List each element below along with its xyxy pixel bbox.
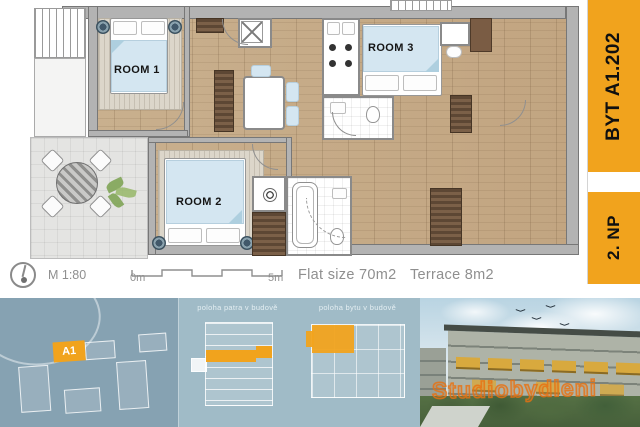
site-building-a1: A1	[53, 340, 86, 362]
nightstand	[96, 20, 110, 34]
closet-shelves	[252, 212, 286, 256]
desk-chair	[446, 46, 462, 58]
toilet-icon	[366, 106, 380, 123]
building-roof	[444, 325, 640, 338]
terrace-table	[56, 162, 98, 204]
site-building	[138, 333, 167, 353]
kitchen-sink	[327, 22, 340, 35]
stove-burner	[329, 44, 336, 51]
scale-bar	[128, 260, 288, 282]
stove-burner	[345, 44, 352, 51]
section-panel: poloha patra v budově	[178, 298, 296, 427]
balcony	[616, 363, 640, 376]
pillow	[403, 75, 437, 91]
unit-id-label: BYT A1.202	[603, 32, 625, 141]
flat-highlight	[312, 325, 354, 353]
wall-room1-bottom	[88, 130, 188, 137]
site-building	[116, 360, 149, 410]
building-photo: Studiobydleni	[420, 298, 640, 427]
wall-room1-right	[184, 6, 190, 137]
wall-room2-top	[148, 137, 292, 143]
balcony-top-left	[34, 8, 86, 58]
site-building	[64, 387, 102, 413]
blanket-fold	[425, 58, 439, 72]
section-floor-highlight	[256, 346, 272, 358]
wardrobe	[430, 188, 462, 246]
scale-label: M 1:80	[48, 268, 86, 282]
dining-chair	[286, 106, 299, 126]
stove-burner	[329, 60, 336, 67]
site-building-a1-label: A1	[62, 345, 77, 358]
floor-tag: 2. NP	[588, 192, 640, 284]
bird-icon	[532, 316, 541, 320]
footpath	[420, 406, 490, 427]
pillow	[365, 75, 399, 91]
floor-position-panel: poloha bytu v budově	[295, 298, 420, 427]
hall-wardrobe	[214, 70, 234, 132]
pillow	[206, 228, 240, 243]
room3-label: ROOM 3	[368, 42, 414, 54]
site-building	[85, 340, 116, 360]
pillow	[113, 21, 137, 35]
dining-chair	[251, 65, 271, 77]
unit-id-tag: BYT A1.202	[588, 0, 640, 172]
balcony	[488, 358, 512, 371]
balcony	[584, 361, 608, 374]
location-strip: A1 poloha patra v budově poloha bytu v b…	[0, 298, 640, 427]
wall-right	[566, 6, 579, 254]
terrace-size-text: Terrace 8m2	[410, 267, 494, 283]
unit-sidebar: BYT A1.202 2. NP	[587, 0, 640, 284]
room2-label: ROOM 2	[176, 196, 222, 208]
floor-label: 2. NP	[604, 215, 624, 260]
desk	[440, 22, 470, 46]
bird-icon	[560, 322, 569, 326]
balcony-top-center	[390, 0, 452, 11]
kitchen-sink	[342, 22, 355, 35]
plan-caption: poloha bytu v budově	[295, 303, 420, 312]
blanket-fold	[228, 210, 242, 224]
blanket-fold	[111, 40, 125, 54]
balcony	[456, 357, 480, 370]
bird-icon	[516, 308, 525, 312]
room1-label: ROOM 1	[114, 64, 160, 76]
balcony	[520, 359, 544, 372]
scale-end-label: 5m	[268, 272, 283, 284]
balcony-left-walk	[34, 58, 86, 137]
floor-plan: ROOM 1 ROOM 3	[0, 0, 587, 295]
scale-start-label: 0m	[130, 272, 145, 284]
dining-chair	[286, 82, 299, 102]
flat-highlight	[306, 331, 314, 347]
section-floor-highlight	[206, 350, 256, 362]
site-plan-panel: A1	[0, 298, 178, 427]
pillow	[168, 228, 202, 243]
flat-size-text: Flat size 70m2	[298, 267, 397, 283]
section-drawing	[205, 322, 273, 406]
nightstand	[152, 236, 166, 250]
bird-icon	[546, 304, 555, 308]
balcony	[552, 360, 576, 373]
watermark: Studiobydleni	[432, 375, 598, 405]
stove-burner	[345, 60, 352, 67]
washer-icon	[263, 188, 277, 202]
section-caption: poloha patra v budově	[179, 303, 296, 312]
balcony	[600, 384, 624, 397]
listing-image: ROOM 1 ROOM 3	[0, 0, 640, 427]
site-building	[18, 365, 51, 413]
nightstand	[168, 20, 182, 34]
cabinet	[470, 18, 492, 52]
pillow	[141, 21, 165, 35]
section-stair-block	[191, 358, 207, 372]
dining-table	[243, 76, 285, 130]
wardrobe	[450, 95, 472, 133]
north-compass-icon	[10, 262, 36, 288]
doormat	[196, 18, 224, 33]
